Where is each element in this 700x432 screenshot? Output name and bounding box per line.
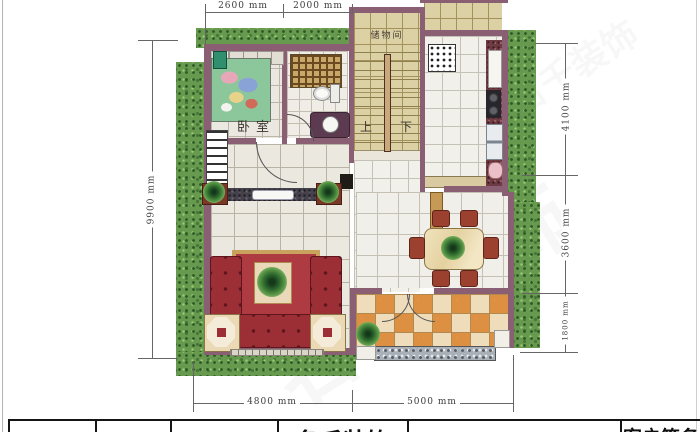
dining-chair — [432, 210, 450, 227]
page-border-left — [2, 0, 3, 432]
wall-segment — [434, 288, 514, 294]
dimension-label: 2000 mm — [290, 1, 346, 12]
dimension-tick — [352, 4, 353, 14]
floor-drain — [428, 44, 456, 72]
stair-handrail — [384, 54, 391, 152]
vanity-basin — [322, 116, 339, 133]
wall-segment — [420, 30, 508, 36]
hedge-strip-right-upper — [508, 30, 536, 202]
dimension-line — [205, 12, 353, 13]
dimension-line — [565, 134, 566, 206]
dimension-tick — [535, 43, 578, 44]
title-block-top-line — [8, 419, 700, 421]
floor-plan-canvas: 名千装饰 名千装饰 卧室 储物间 上 下 — [0, 0, 700, 432]
side-table — [204, 314, 240, 352]
dining-chair — [483, 237, 499, 259]
dimension-tick — [138, 40, 178, 41]
kitchen-cabinet-block — [424, 2, 502, 30]
sofa-left — [210, 256, 242, 320]
dimension-tick — [138, 358, 178, 359]
dining-chair — [432, 270, 450, 287]
double-sink — [486, 124, 503, 160]
dimension-label: 5000 mm — [404, 397, 460, 408]
dimension-tick — [352, 390, 353, 412]
shower-mat — [290, 54, 342, 88]
plant-icon — [317, 181, 339, 203]
carpet-plant-motif — [257, 267, 287, 297]
customer-signature-label: 客户签名 — [622, 423, 700, 432]
nightstand — [213, 51, 227, 69]
dimension-tick — [522, 293, 578, 294]
kettle — [488, 162, 503, 179]
plant-icon — [356, 322, 380, 346]
title-block-divider — [95, 421, 97, 432]
page-border-right — [696, 0, 697, 432]
dining-chair — [460, 210, 478, 227]
dimension-label: 9900 mm — [147, 172, 158, 228]
wall-segment — [444, 186, 508, 192]
dimension-label: 3600 mm — [562, 205, 573, 261]
dimension-line — [193, 403, 513, 404]
dimension-label: 4100 mm — [562, 79, 573, 135]
dimension-tick — [283, 4, 284, 18]
wall-segment — [508, 192, 514, 348]
dimension-tick — [205, 4, 206, 45]
wall-segment — [349, 7, 354, 163]
stove — [486, 90, 501, 118]
dimension-tick — [520, 352, 578, 353]
wall-segment — [420, 0, 508, 3]
bedroom-label: 卧室 — [224, 116, 288, 135]
stairs-down-label: 下 — [398, 118, 414, 135]
title-block-divider — [407, 421, 409, 432]
title-block-divider — [170, 421, 172, 432]
wall-segment — [349, 7, 425, 13]
table-decor — [217, 328, 226, 337]
hedge-strip-right-lower — [514, 202, 540, 348]
table-centerpiece — [441, 236, 465, 260]
dining-chair — [409, 237, 425, 259]
dimension-tick — [513, 355, 514, 412]
balcony-step — [494, 330, 510, 348]
dimension-tick — [193, 362, 194, 412]
stairs-up-label: 上 — [358, 118, 374, 135]
dimension-label: 2600 mm — [215, 1, 271, 12]
sofa-bottom — [238, 314, 314, 348]
sofa-right — [310, 256, 342, 320]
radiator — [206, 130, 228, 188]
side-table — [310, 314, 346, 352]
dining-chair — [460, 270, 478, 287]
dimension-tick — [522, 175, 578, 176]
toilet-tank — [330, 84, 340, 103]
cutting-board — [488, 50, 502, 88]
table-decor — [323, 328, 332, 337]
company-name: 名千装饰 — [279, 422, 407, 432]
storage-room-label: 储物间 — [362, 28, 412, 41]
pebble-border — [374, 346, 496, 361]
dimension-label: 1800 mm — [561, 297, 572, 345]
balcony-step — [356, 346, 376, 360]
dimension-line — [565, 43, 566, 80]
wall-segment — [350, 288, 356, 354]
living-room-window — [230, 349, 324, 356]
wall-segment — [350, 288, 382, 294]
plant-icon — [203, 181, 225, 203]
tv — [252, 190, 294, 200]
toilet — [313, 86, 331, 101]
wall-segment — [204, 44, 354, 51]
title-block-divider — [8, 421, 10, 432]
dimension-label: 4800 mm — [244, 397, 300, 408]
